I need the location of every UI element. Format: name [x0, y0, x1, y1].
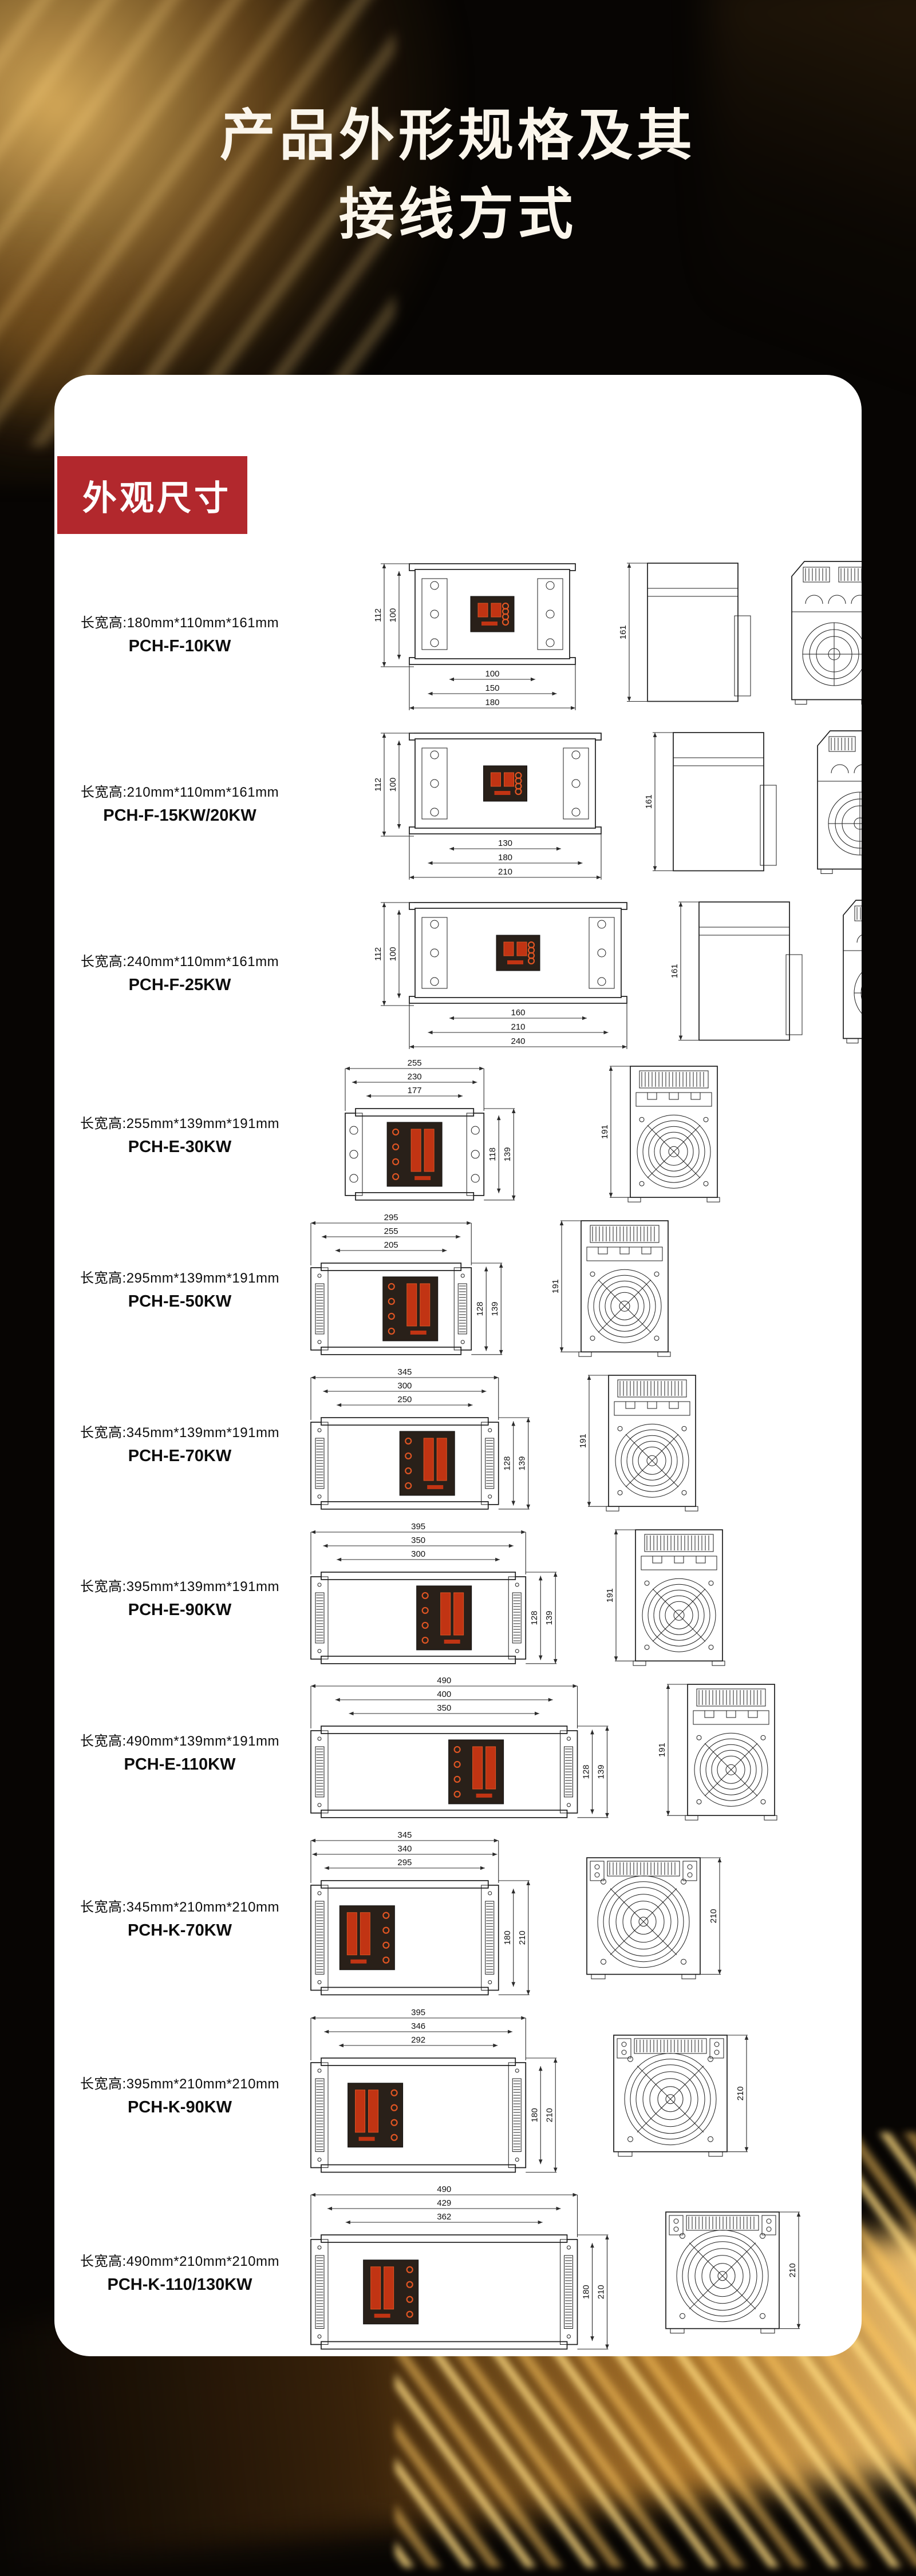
back-view-drawing: 191: [593, 1061, 725, 1208]
svg-text:191: 191: [605, 1588, 615, 1602]
svg-text:130: 130: [498, 838, 512, 848]
back-view-drawing: 191: [598, 1524, 731, 1671]
product-rows: 长宽高:180mm*110mm*161mmPCH-F-10KW112100100…: [74, 551, 850, 2356]
product-row: 长宽高:345mm*210mm*210mmPCH-K-70KW345340295…: [74, 1831, 850, 2004]
svg-text:210: 210: [709, 1909, 718, 1923]
product-row: 长宽高:490mm*210mm*210mmPCH-K-110/130KW4904…: [74, 2186, 850, 2356]
svg-text:240: 240: [511, 1036, 525, 1046]
product-drawings: 112100100150180161161: [366, 551, 862, 716]
product-label: 长宽高:490mm*210mm*210mmPCH-K-110/130KW: [74, 2250, 286, 2294]
product-row: 长宽高:395mm*210mm*210mmPCH-K-90KW395346292…: [74, 2009, 850, 2182]
svg-text:346: 346: [411, 2021, 425, 2031]
front-view-drawing: 490400350128139: [286, 1677, 618, 1827]
product-row: 长宽高:240mm*110mm*161mmPCH-F-25KW112100160…: [74, 890, 850, 1055]
front-view-drawing: 112100130180210: [366, 721, 610, 885]
control-display: [496, 935, 540, 971]
control-display: [364, 2260, 418, 2324]
product-dimensions-text: 长宽高:295mm*139mm*191mm: [74, 1267, 286, 1287]
svg-text:350: 350: [411, 1536, 425, 1545]
control-display: [339, 1906, 394, 1970]
product-dimensions-text: 长宽高:345mm*210mm*210mm: [74, 1896, 286, 1916]
svg-text:139: 139: [490, 1301, 500, 1316]
product-dimensions-text: 长宽高:255mm*139mm*191mm: [74, 1112, 286, 1132]
svg-text:300: 300: [411, 1549, 425, 1559]
svg-text:230: 230: [408, 1072, 422, 1082]
page-title-line1: 产品外形规格及其: [0, 96, 916, 175]
product-row: 长宽高:210mm*110mm*161mmPCH-F-15KW/20KW1121…: [74, 721, 850, 885]
control-display: [383, 1277, 438, 1341]
svg-text:180: 180: [530, 2108, 539, 2122]
back-view-drawing: 210: [658, 2205, 815, 2339]
side-view-drawing: 161: [662, 895, 811, 1050]
side-view-drawing: 161: [611, 556, 760, 711]
product-label: 长宽高:395mm*139mm*191mmPCH-E-90KW: [74, 1575, 286, 1620]
svg-text:210: 210: [597, 2285, 606, 2299]
svg-text:210: 210: [544, 2108, 554, 2122]
product-drawings: 490400350128139191: [286, 1677, 850, 1827]
svg-text:400: 400: [437, 1689, 451, 1699]
svg-text:191: 191: [578, 1434, 588, 1448]
svg-text:118: 118: [488, 1147, 498, 1161]
page-title-line2: 接线方式: [0, 175, 916, 254]
product-dimensions-text: 长宽高:180mm*110mm*161mm: [74, 611, 286, 631]
svg-text:300: 300: [397, 1381, 412, 1391]
control-display: [387, 1122, 442, 1186]
product-row: 长宽高:180mm*110mm*161mmPCH-F-10KW112100100…: [74, 551, 850, 716]
product-model: PCH-F-10KW: [74, 637, 286, 656]
svg-text:177: 177: [408, 1086, 422, 1095]
product-dimensions-text: 长宽高:490mm*210mm*210mm: [74, 2250, 286, 2270]
product-drawings: 255230177118139191: [320, 1059, 850, 1209]
back-view-drawing: 191: [543, 1215, 676, 1362]
product-label: 长宽高:345mm*210mm*210mmPCH-K-70KW: [74, 1896, 286, 1940]
control-display: [400, 1431, 455, 1495]
svg-text:128: 128: [530, 1611, 539, 1625]
svg-text:490: 490: [437, 2186, 451, 2194]
product-label: 长宽高:240mm*110mm*161mmPCH-F-25KW: [74, 950, 286, 995]
svg-text:180: 180: [485, 698, 499, 707]
product-model: PCH-F-15KW/20KW: [74, 806, 286, 825]
front-view-drawing: 395350300128139: [286, 1523, 566, 1673]
front-view-drawing: 255230177118139: [320, 1059, 524, 1209]
front-view-drawing: 295255205128139: [286, 1214, 511, 1364]
svg-text:255: 255: [384, 1226, 398, 1236]
svg-text:210: 210: [736, 2086, 745, 2100]
product-drawings: 295255205128139191: [286, 1214, 850, 1364]
back-view-drawing: 161: [786, 555, 862, 713]
svg-text:295: 295: [384, 1214, 398, 1222]
product-model: PCH-F-25KW: [74, 976, 286, 995]
product-label: 长宽高:210mm*110mm*161mmPCH-F-15KW/20KW: [74, 781, 286, 825]
section-badge: 外观尺寸: [57, 456, 247, 534]
product-label: 长宽高:255mm*139mm*191mmPCH-E-30KW: [74, 1112, 286, 1157]
product-drawings: 395346292180210210: [286, 2009, 850, 2182]
svg-text:180: 180: [582, 2285, 591, 2299]
product-row: 长宽高:345mm*139mm*191mmPCH-E-70KW345300250…: [74, 1368, 850, 1518]
svg-text:210: 210: [787, 2263, 797, 2277]
svg-text:100: 100: [388, 608, 398, 622]
svg-text:139: 139: [596, 1765, 606, 1779]
page-title: 产品外形规格及其 接线方式: [0, 96, 916, 254]
svg-text:128: 128: [475, 1301, 485, 1316]
svg-text:139: 139: [518, 1456, 527, 1470]
product-model: PCH-K-70KW: [74, 1921, 286, 1940]
front-view-drawing: 112100160210240: [366, 890, 636, 1055]
svg-text:128: 128: [503, 1456, 512, 1470]
svg-text:345: 345: [397, 1831, 412, 1840]
svg-text:161: 161: [644, 794, 654, 809]
product-drawings: 112100130180210161161: [366, 721, 862, 885]
back-view-drawing: 161: [838, 893, 862, 1051]
front-view-drawing: 345300250128139: [286, 1368, 539, 1518]
svg-text:250: 250: [397, 1395, 412, 1404]
control-display: [449, 1740, 504, 1804]
back-view-drawing: 210: [579, 1851, 736, 1985]
svg-text:340: 340: [397, 1844, 412, 1854]
product-drawings: 490429362180210210: [286, 2186, 850, 2356]
control-display: [348, 2083, 403, 2147]
spec-panel: 外观尺寸 长宽高:180mm*110mm*161mmPCH-F-10KW1121…: [54, 375, 862, 2356]
product-dimensions-text: 长宽高:345mm*139mm*191mm: [74, 1421, 286, 1441]
front-view-drawing: 490429362180210: [286, 2186, 618, 2356]
back-view-drawing: 191: [650, 1679, 783, 1826]
product-row: 长宽高:255mm*139mm*191mmPCH-E-30KW255230177…: [74, 1059, 850, 1209]
svg-text:161: 161: [618, 625, 628, 639]
product-drawings: 395350300128139191: [286, 1523, 850, 1673]
svg-text:191: 191: [600, 1125, 610, 1139]
control-display: [484, 766, 527, 801]
product-model: PCH-E-90KW: [74, 1601, 286, 1620]
svg-text:395: 395: [411, 2009, 425, 2017]
product-label: 长宽高:180mm*110mm*161mmPCH-F-10KW: [74, 611, 286, 656]
svg-text:295: 295: [397, 1858, 412, 1867]
svg-text:191: 191: [551, 1279, 560, 1293]
side-view-drawing: 161: [637, 726, 785, 880]
product-drawings: 345340295180210210: [286, 1831, 850, 2004]
control-display: [471, 596, 514, 632]
svg-text:128: 128: [581, 1765, 591, 1779]
back-view-drawing: 191: [571, 1370, 704, 1517]
svg-text:210: 210: [511, 1022, 525, 1032]
svg-text:205: 205: [384, 1240, 398, 1250]
product-dimensions-text: 长宽高:210mm*110mm*161mm: [74, 781, 286, 801]
front-view-drawing: 345340295180210: [286, 1831, 539, 2004]
product-label: 长宽高:490mm*139mm*191mmPCH-E-110KW: [74, 1730, 286, 1774]
control-display: [417, 1585, 472, 1649]
svg-text:490: 490: [437, 1677, 451, 1685]
svg-text:112: 112: [373, 778, 383, 792]
svg-text:210: 210: [518, 1930, 527, 1945]
svg-text:161: 161: [670, 964, 680, 978]
product-model: PCH-E-50KW: [74, 1292, 286, 1311]
svg-text:191: 191: [657, 1743, 667, 1757]
product-model: PCH-E-70KW: [74, 1447, 286, 1466]
svg-text:350: 350: [437, 1703, 451, 1713]
svg-text:180: 180: [498, 853, 512, 862]
front-view-drawing: 395346292180210: [286, 2009, 566, 2182]
svg-text:100: 100: [485, 669, 499, 679]
product-row: 长宽高:490mm*139mm*191mmPCH-E-110KW49040035…: [74, 1677, 850, 1827]
svg-text:362: 362: [437, 2212, 451, 2222]
product-label: 长宽高:345mm*139mm*191mmPCH-E-70KW: [74, 1421, 286, 1466]
back-view-drawing: 161: [812, 724, 862, 882]
svg-text:210: 210: [498, 867, 512, 877]
svg-text:112: 112: [373, 608, 383, 622]
product-drawings: 112100160210240161161: [366, 890, 862, 1055]
svg-text:395: 395: [411, 1523, 425, 1532]
svg-text:180: 180: [503, 1930, 512, 1945]
product-model: PCH-K-90KW: [74, 2098, 286, 2117]
product-row: 长宽高:395mm*139mm*191mmPCH-E-90KW395350300…: [74, 1523, 850, 1673]
back-view-drawing: 210: [606, 2028, 763, 2162]
svg-text:100: 100: [388, 777, 398, 792]
svg-text:112: 112: [373, 947, 383, 961]
product-row: 长宽高:295mm*139mm*191mmPCH-E-50KW295255205…: [74, 1214, 850, 1364]
product-model: PCH-K-110/130KW: [74, 2276, 286, 2294]
product-dimensions-text: 长宽高:395mm*139mm*191mm: [74, 1575, 286, 1595]
svg-text:345: 345: [397, 1368, 412, 1377]
product-model: PCH-E-110KW: [74, 1755, 286, 1774]
product-dimensions-text: 长宽高:490mm*139mm*191mm: [74, 1730, 286, 1750]
section-badge-label: 外观尺寸: [82, 470, 231, 520]
svg-text:255: 255: [408, 1059, 422, 1068]
svg-text:150: 150: [485, 683, 499, 693]
front-view-drawing: 112100100150180: [366, 551, 585, 716]
svg-text:139: 139: [544, 1611, 554, 1625]
product-dimensions-text: 长宽高:240mm*110mm*161mm: [74, 950, 286, 970]
product-dimensions-text: 长宽高:395mm*210mm*210mm: [74, 2072, 286, 2092]
product-model: PCH-E-30KW: [74, 1138, 286, 1157]
product-drawings: 345300250128139191: [286, 1368, 850, 1518]
svg-text:292: 292: [411, 2035, 425, 2045]
svg-text:429: 429: [437, 2198, 451, 2208]
product-label: 长宽高:395mm*210mm*210mmPCH-K-90KW: [74, 2072, 286, 2117]
product-label: 长宽高:295mm*139mm*191mmPCH-E-50KW: [74, 1267, 286, 1311]
svg-text:139: 139: [503, 1147, 512, 1161]
svg-text:100: 100: [388, 947, 398, 961]
svg-text:160: 160: [511, 1008, 525, 1018]
